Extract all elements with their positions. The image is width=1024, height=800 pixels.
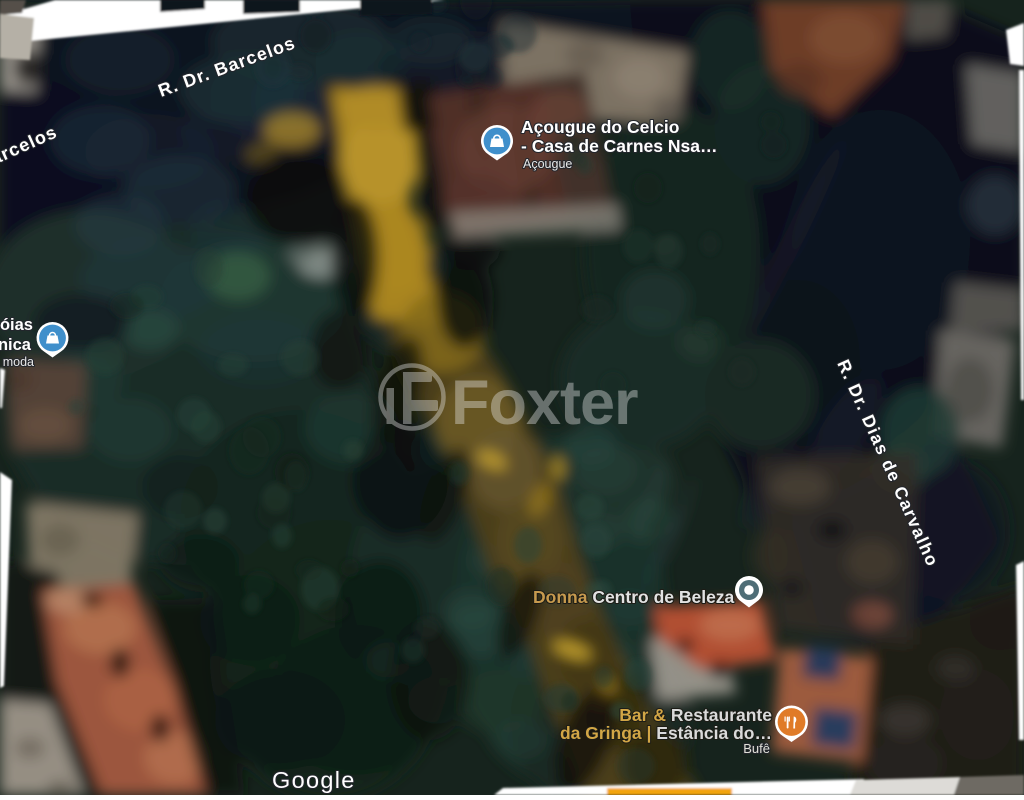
svg-text:Donna Centro de Beleza: Donna Centro de Beleza [533, 587, 735, 607]
svg-text:Açougue do Celcio: Açougue do Celcio [521, 117, 679, 137]
svg-text:Bufê: Bufê [743, 741, 770, 756]
svg-text:óias: óias [0, 316, 33, 334]
svg-text:- Casa de Carnes Nsa…: - Casa de Carnes Nsa… [521, 136, 717, 156]
svg-text:Foxter: Foxter [451, 368, 638, 438]
svg-text:Bar & Restaurante: Bar & Restaurante [619, 705, 772, 725]
svg-text:Google: Google [272, 767, 356, 793]
svg-text:Açougue: Açougue [523, 157, 572, 171]
svg-text:nica: nica [0, 336, 32, 354]
svg-text:moda: moda [3, 355, 34, 369]
svg-text:da Gringa | Estância do…: da Gringa | Estância do… [560, 723, 772, 743]
